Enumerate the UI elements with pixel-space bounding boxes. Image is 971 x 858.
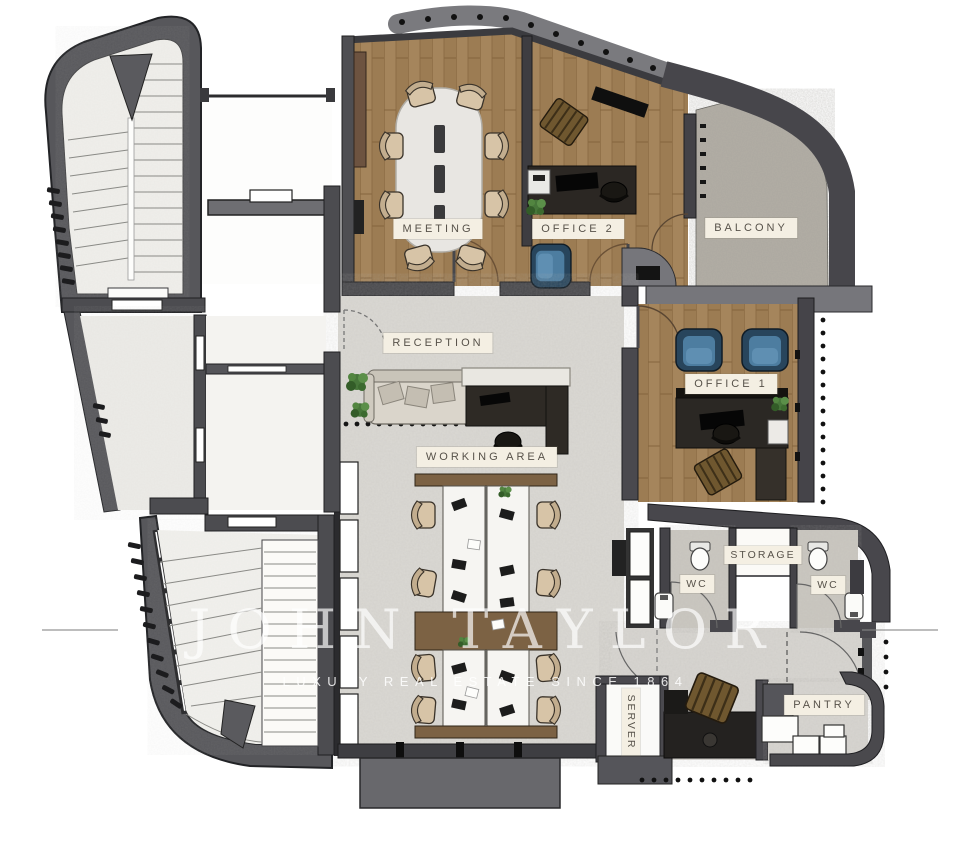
wc-left-east-wall [729,528,736,628]
office1-armchair-2 [742,329,788,371]
dark-box [664,690,688,714]
room-label-office2: OFFICE 2 [532,219,624,239]
office2-armchair [531,244,571,288]
office1-west-wall-top [622,286,638,306]
floor-plan-drawing [0,0,971,858]
wc-door-jamb [834,620,860,632]
room-label-wc-left: WC [680,575,714,593]
wc-shelf [850,560,864,594]
room-label-balcony: BALCONY [705,218,797,238]
desk-plant [458,637,470,647]
top-block [342,14,842,296]
office1-chair [712,424,740,444]
reception-west-wall-lower [324,352,340,512]
ledge-vent [636,266,660,280]
room-label-server: SERVER [622,689,640,756]
wall-nib [858,648,864,656]
working-south-wall [338,744,604,758]
stair-stringer-nw [128,118,134,280]
wc-door-jamb [710,620,736,632]
room-label-office1: OFFICE 1 [685,374,777,394]
room-label-pantry: PANTRY [784,695,864,715]
sw-stair-flight [262,540,318,746]
void-window-notch [250,190,292,202]
side-room-window [228,366,286,372]
watermark-line-left [42,629,118,631]
room-label-working-area: WORKING AREA [417,447,557,467]
wc-right-west-wall [790,528,797,628]
window-below-stairs-nw [112,300,162,310]
floor-plan-page: MEETING OFFICE 2 BALCONY RECEPTION OFFIC… [0,0,971,858]
office2-chair [600,182,628,202]
room-label-meeting: MEETING [393,219,482,239]
partition-pane [630,532,650,576]
sw-north-wall-1 [150,498,208,514]
room-label-reception: RECEPTION [383,333,492,353]
corridor-window [196,428,204,462]
credenza-item [703,733,717,747]
meeting-credenza [354,52,366,167]
reception-plant [346,373,368,391]
shaft-box [612,540,628,576]
wall-cap [200,88,209,102]
corridor-window [196,336,204,370]
reception-west-wall-upper [324,186,340,312]
south-wall-seg [342,282,454,296]
south-terrace-slab [360,758,560,808]
office1-west-wall [622,348,638,500]
sink-right [845,593,863,619]
desk-plant [498,487,511,498]
office1-plant [771,397,789,411]
sw-east-wall [318,515,334,755]
partition-pane [630,580,650,624]
stairwell-northwest [45,17,205,312]
server-south-slab [598,756,672,784]
meeting-west-wall [342,36,354,288]
office1-cabinet [768,420,788,444]
office1-block [622,286,814,502]
west-windows [340,462,358,746]
office1-armchair-1 [676,329,722,371]
office1-desk-return [756,448,786,500]
stairwell-southwest [128,498,334,768]
server-west-wall [596,676,606,762]
reception-plant-2 [351,402,370,417]
meeting-table-inlays [434,125,445,233]
toilet-right [808,542,828,570]
toilet-left [690,542,710,570]
side-room-floor [206,316,326,510]
wall-cap [326,88,335,102]
sink-left [655,593,673,619]
watermark-line-right [862,629,938,631]
room-label-storage: STORAGE [724,546,801,564]
office2-printer [528,170,550,194]
top-void-corridor [200,88,336,284]
sw-north-window [228,517,276,527]
server-north-wall [596,676,668,684]
printer-detail [533,175,545,181]
meeting-tv [354,200,364,234]
room-label-wc-right: WC [811,576,845,594]
office1-east-wall [798,298,814,502]
reception-sofa [364,370,476,424]
office2-plant [526,199,546,215]
balcony-west-wall [684,114,696,218]
